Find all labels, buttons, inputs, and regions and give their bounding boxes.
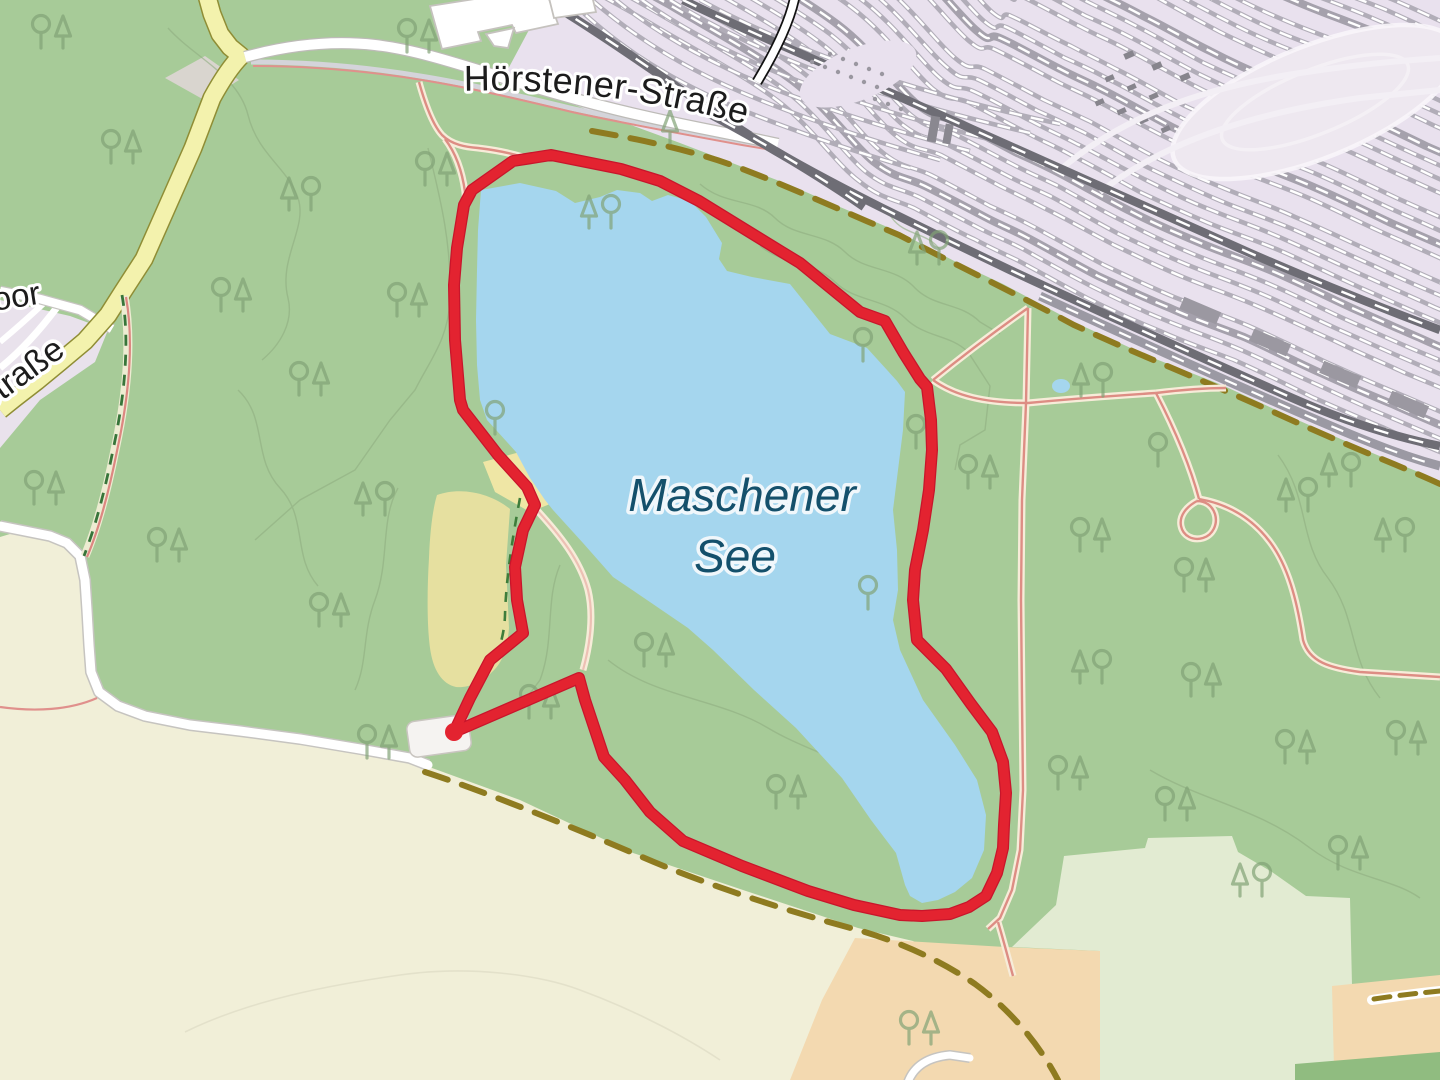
svg-text:See: See [694, 530, 776, 582]
svg-text:oor: oor [0, 274, 43, 318]
svg-text:Maschener: Maschener [628, 469, 857, 521]
